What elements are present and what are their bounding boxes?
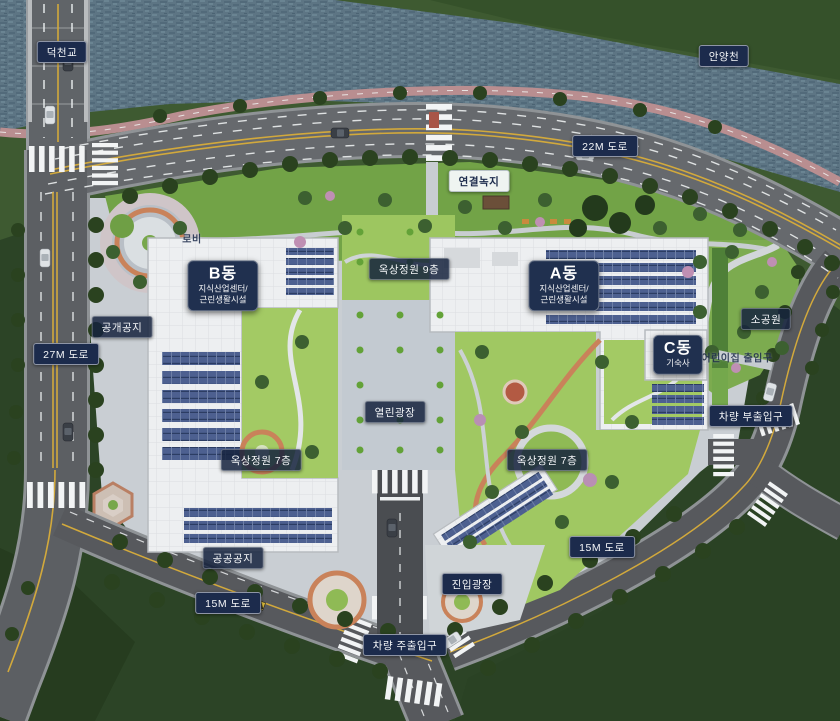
entrance-road [372,470,428,648]
site-plan-rendering [0,0,840,721]
building-b-roof-garden [242,308,338,478]
pergola [483,196,509,209]
site-plan: 덕천교 안양천 22M 도로 연결녹지 로비 옥상정원 9층 공개공지 27M … [0,0,840,721]
building-c-roof [645,330,707,380]
building-b [148,238,338,552]
garden-circle-feature [504,381,526,403]
